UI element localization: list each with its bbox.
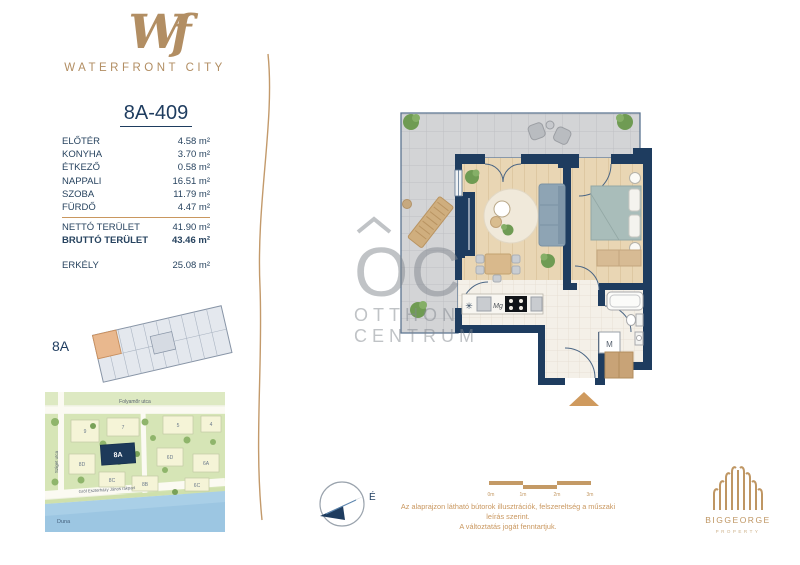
svg-text:9: 9 — [84, 429, 87, 435]
svg-text:6C: 6C — [194, 483, 201, 489]
svg-text:8B: 8B — [142, 482, 149, 488]
tv-cabinet — [463, 192, 475, 256]
scale-bar: 0m 1m 2m 3m — [487, 477, 597, 501]
room-area: 16.51 m² — [173, 175, 211, 188]
dresser — [597, 250, 641, 266]
biggeorge-sub: PROPERTY — [716, 529, 761, 534]
room-area: 4.58 m² — [178, 135, 210, 148]
location-map: 8A 9 7 5 4 6D 6A 8D 8C 8B 6C Folyamőr ut… — [45, 392, 225, 532]
table-row: ELŐTÉR 4.58 m² — [62, 135, 210, 148]
table-row-balcony: ERKÉLY 25.08 m² — [62, 259, 210, 272]
svg-text:1m: 1m — [520, 492, 527, 498]
room-label: FÜRDŐ — [62, 201, 96, 214]
kitchen-counter: ✳ Mg — [462, 294, 543, 314]
total-area: 43.46 m² — [172, 234, 210, 247]
entrance-arrow — [569, 392, 599, 406]
highlighted-unit — [93, 330, 122, 359]
fridge-symbol: ✳ — [465, 301, 473, 311]
svg-text:8C: 8C — [109, 478, 116, 484]
compass-north-label: É — [369, 490, 376, 503]
biggeorge-logo-mark — [714, 467, 762, 510]
disclaimer-line: Az alaprajzon látható bútorok illusztrác… — [398, 502, 618, 522]
building-label: 8A — [52, 338, 69, 354]
table-row: NAPPALI 16.51 m² — [62, 175, 210, 188]
room-label: SZOBA — [62, 188, 94, 201]
scale-bar-ticks: 0m 1m 2m 3m — [488, 492, 594, 498]
map-street-left-label: Sziget utca — [54, 450, 59, 473]
apartment-floor-plan: ✳ Mg M — [393, 98, 663, 410]
microwave-label: Mg — [493, 303, 503, 310]
room-area: 11.79 m² — [173, 188, 210, 201]
room-label: ELŐTÉR — [62, 135, 100, 148]
biggeorge-logo: BIGGEORGE PROPERTY — [688, 458, 788, 542]
map-street-top-label: Folyamőr utca — [119, 399, 151, 405]
map-river-label: Duna — [57, 519, 71, 525]
sofa — [539, 184, 565, 246]
svg-text:6A: 6A — [203, 461, 210, 467]
room-label: ÉTKEZŐ — [62, 161, 100, 174]
terrace-side-table — [403, 200, 412, 209]
map-highlight-label: 8A — [113, 452, 122, 460]
round-rug — [484, 189, 538, 243]
counter-cabinet — [531, 297, 542, 311]
biggeorge-name: BIGGEORGE — [705, 515, 770, 525]
table-row-gross-total: BRUTTÓ TERÜLET 43.46 m² — [62, 234, 210, 247]
total-area: 41.90 m² — [173, 221, 211, 234]
total-label: NETTÓ TERÜLET — [62, 221, 140, 234]
table-row: KONYHA 3.70 m² — [62, 148, 210, 161]
svg-text:6D: 6D — [167, 455, 174, 461]
svg-text:7: 7 — [122, 425, 125, 431]
room-label: ERKÉLY — [62, 259, 99, 272]
compass-icon: É — [312, 474, 390, 534]
hall-floor — [543, 280, 598, 378]
svg-text:3m: 3m — [587, 492, 594, 498]
table-row: SZOBA 11.79 m² — [62, 188, 210, 201]
disclaimer-line: A változtatás jogát fenntartjuk. — [398, 522, 618, 532]
room-area: 0.58 m² — [178, 161, 210, 174]
brand-monogram-logo: Wf — [90, 4, 220, 64]
room-area: 3.70 m² — [178, 148, 210, 161]
total-label: BRUTTÓ TERÜLET — [62, 234, 148, 247]
watermark-roof-icon — [354, 216, 398, 234]
spacer — [62, 248, 210, 259]
nightstand — [630, 173, 641, 184]
bed — [591, 186, 641, 240]
window — [455, 170, 462, 196]
disclaimer: Az alaprajzon látható bútorok illusztrác… — [398, 502, 618, 532]
table-row: ÉTKEZŐ 0.58 m² — [62, 161, 210, 174]
decorative-wave-line — [248, 52, 278, 522]
totals-divider — [62, 217, 210, 218]
room-area: 25.08 m² — [173, 259, 211, 272]
room-area-table: ELŐTÉR 4.58 m² KONYHA 3.70 m² ÉTKEZŐ 0.5… — [62, 135, 210, 272]
bathroom-sink — [635, 332, 643, 345]
bathtub — [607, 292, 643, 310]
svg-text:5: 5 — [177, 423, 180, 429]
washing-machine-label: M — [606, 340, 613, 349]
brand-name: WATERFRONT CITY — [38, 62, 252, 74]
svg-text:8D: 8D — [79, 462, 86, 468]
table-row-net-total: NETTÓ TERÜLET 41.90 m² — [62, 221, 210, 234]
brochure-page: Wf WATERFRONT CITY 8A-409 ELŐTÉR 4.58 m²… — [0, 0, 800, 565]
table-row: FÜRDŐ 4.47 m² — [62, 201, 210, 214]
map-highlight-building: 8A — [100, 443, 135, 465]
hall-wardrobe — [605, 352, 633, 378]
building-outline — [93, 306, 232, 382]
svg-text:2m: 2m — [554, 492, 561, 498]
svg-text:4: 4 — [210, 422, 213, 428]
room-area: 4.47 m² — [178, 201, 210, 214]
kitchen-sink — [477, 297, 491, 311]
room-label: KONYHA — [62, 148, 102, 161]
washing-machine: M — [599, 332, 620, 353]
room-label: NAPPALI — [62, 175, 101, 188]
building-floor-thumbnail — [84, 296, 240, 390]
unit-title: 8A-409 — [120, 102, 193, 127]
cooktop — [505, 296, 527, 312]
svg-text:0m: 0m — [488, 492, 495, 498]
unit-title-wrap: 8A-409 — [60, 102, 252, 127]
